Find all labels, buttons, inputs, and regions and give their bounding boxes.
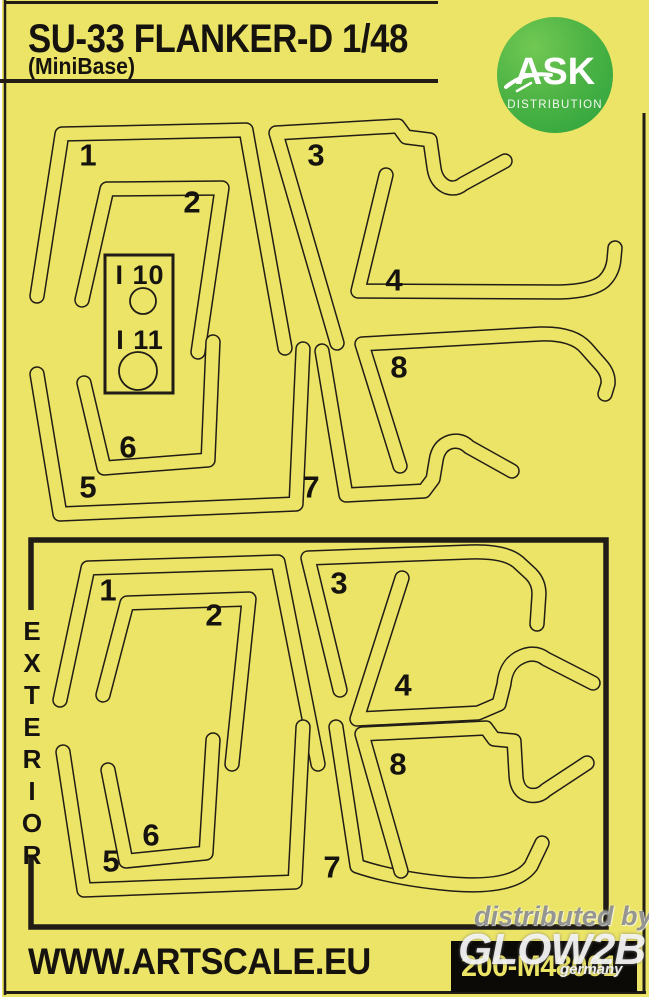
insert-label-i10: I 10 xyxy=(115,260,164,291)
interior-mask-outline-5 xyxy=(37,349,303,514)
interior-mask-label-1: 1 xyxy=(79,137,96,173)
exterior-mask-label-6: 6 xyxy=(142,817,159,853)
interior-mask-label-6: 6 xyxy=(119,429,136,465)
website-url: WWW.ARTSCALE.EU xyxy=(28,941,371,983)
interior-mask-outline-1 xyxy=(37,130,285,348)
logo-brand-text: ASK xyxy=(515,53,595,91)
exterior-mask-outline-6 xyxy=(108,740,213,861)
interior-mask-label-3: 3 xyxy=(307,137,324,173)
exterior-mask-outline-2 xyxy=(103,599,249,764)
exterior-mask-outline-5 xyxy=(63,727,303,890)
exterior-mask-outline-4 xyxy=(357,578,593,719)
logo-tagline-text: DISTRIBUTION xyxy=(507,99,603,111)
insert-circle-i11 xyxy=(119,352,157,390)
page-subtitle: (MiniBase) xyxy=(28,53,135,80)
watermark-germany: germany xyxy=(560,961,623,978)
interior-mask-label-7: 7 xyxy=(302,469,319,505)
mask-sheet-scan: SU-33 FLANKER-D 1/48 (MiniBase) ASK DIST… xyxy=(0,0,649,1000)
exterior-mask-label-7: 7 xyxy=(323,849,340,885)
exterior-mask-label-8: 8 xyxy=(389,746,406,782)
interior-mask-outline-7 xyxy=(322,351,512,495)
interior-mask-label-2: 2 xyxy=(183,184,200,220)
insert-label-i11: I 11 xyxy=(116,325,164,356)
exterior-mask-label-2: 2 xyxy=(205,597,222,633)
interior-mask-label-5: 5 xyxy=(79,469,96,505)
exterior-mask-label-1: 1 xyxy=(99,572,116,608)
exterior-mask-label-3: 3 xyxy=(330,565,347,601)
ask-distribution-logo: ASK DISTRIBUTION xyxy=(497,17,613,133)
interior-mask-label-8: 8 xyxy=(390,349,407,385)
interior-mask-outline-6 xyxy=(84,342,213,468)
exterior-mask-label-4: 4 xyxy=(394,667,411,703)
insert-circle-i10 xyxy=(130,288,156,314)
exterior-mask-label-5: 5 xyxy=(102,843,119,879)
exterior-section-label: EXTERIOR xyxy=(17,616,47,872)
interior-mask-label-4: 4 xyxy=(385,262,402,298)
